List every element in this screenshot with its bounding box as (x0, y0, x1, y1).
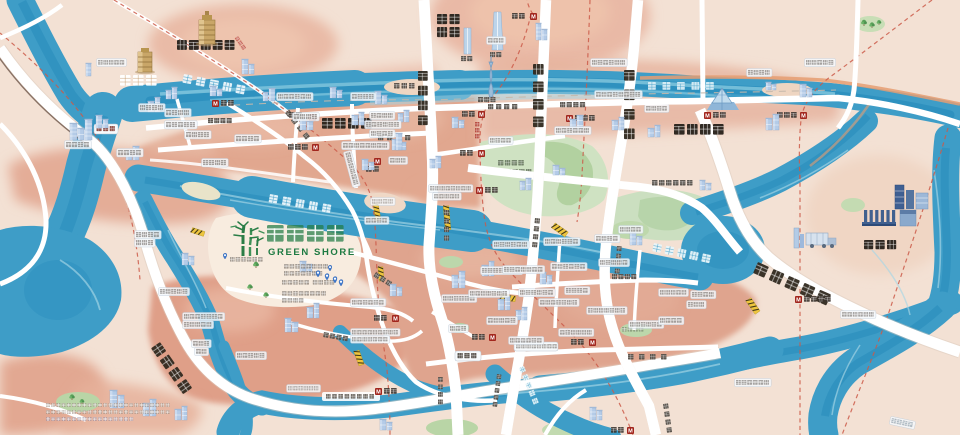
svg-text:M: M (490, 336, 495, 342)
svg-text:M: M (531, 15, 536, 21)
svg-text:M: M (590, 341, 595, 347)
svg-text:M: M (313, 146, 318, 152)
svg-text:M: M (479, 113, 484, 119)
svg-text:M: M (375, 160, 380, 166)
svg-text:M: M (796, 298, 801, 304)
svg-text:M: M (477, 189, 482, 195)
svg-text:GREEN SHORE: GREEN SHORE (268, 247, 356, 258)
svg-text:M: M (705, 114, 710, 120)
svg-text:M: M (393, 317, 398, 323)
svg-text:M: M (628, 429, 633, 435)
svg-text:M: M (376, 390, 381, 396)
svg-text:M: M (479, 152, 484, 158)
svg-text:M: M (801, 114, 806, 120)
svg-text:M: M (213, 102, 218, 108)
